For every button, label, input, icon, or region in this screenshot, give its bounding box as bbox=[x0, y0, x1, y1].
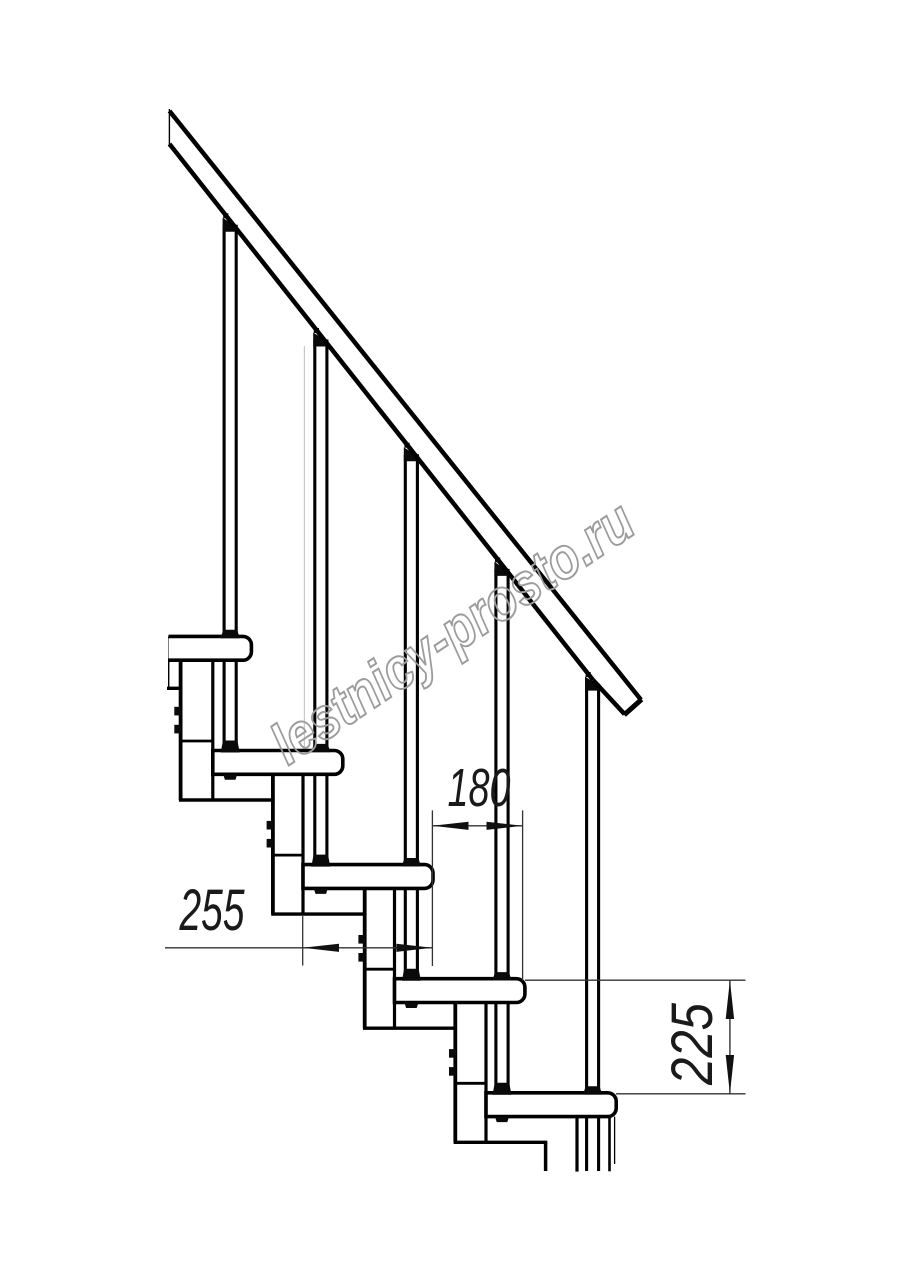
svg-text:180: 180 bbox=[448, 758, 511, 818]
svg-text:225: 225 bbox=[660, 1002, 725, 1085]
svg-text:255: 255 bbox=[179, 878, 245, 943]
